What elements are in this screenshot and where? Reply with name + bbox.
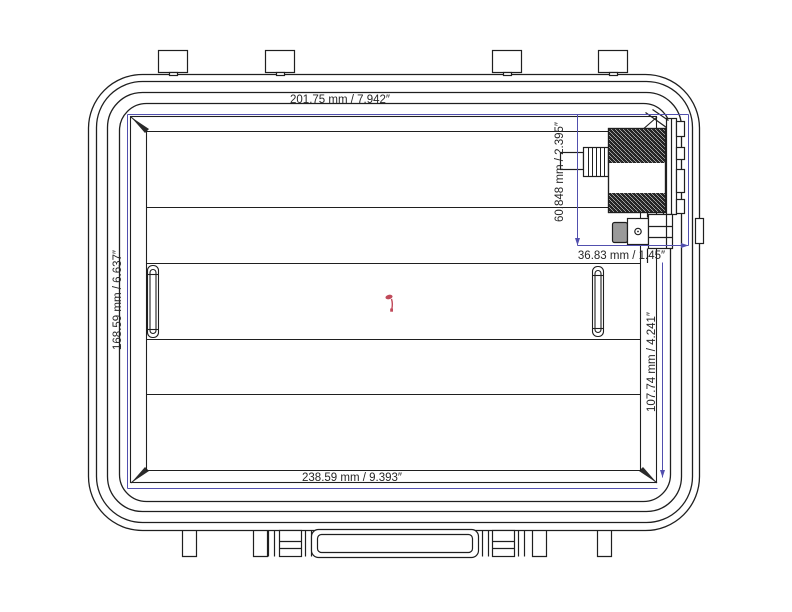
- right-edge-tab: [696, 219, 704, 244]
- valve-lower-fitting: [613, 215, 673, 249]
- right-handle: [593, 267, 604, 337]
- case-outline: [89, 75, 700, 531]
- dimension-label-left-height: 168.59 mm / 6.637″: [112, 250, 124, 350]
- handle-bracket-left: [269, 531, 312, 557]
- bottom-hardware: [183, 530, 612, 558]
- interior-tray: [146, 131, 641, 471]
- red-annotation-mark: [385, 294, 393, 312]
- hinge-tabs-top: [159, 51, 628, 76]
- left-handle: [148, 266, 159, 338]
- interior-opening: [131, 117, 658, 484]
- dimension-label-valve-offset: 36.83 mm / 1.45″: [574, 250, 669, 262]
- dimension-label-valve-height: 60.848 mm / 2.395″: [554, 122, 566, 222]
- valve-knurl-top: [609, 129, 665, 163]
- dimension-label-right-height: 107.74 mm / 4.241″: [646, 312, 658, 412]
- technical-drawing-canvas: 201.75 mm / 7.942″ 168.59 mm / 6.637″ 23…: [0, 0, 792, 612]
- dimension-label-top-width: 201.75 mm / 7.942″: [250, 94, 430, 106]
- valve-knurl-bottom: [609, 193, 665, 212]
- dimension-label-bottom-width: 238.59 mm / 9.393″: [262, 472, 442, 484]
- handle-bracket-right: [483, 531, 525, 557]
- handle-bar: [312, 530, 479, 558]
